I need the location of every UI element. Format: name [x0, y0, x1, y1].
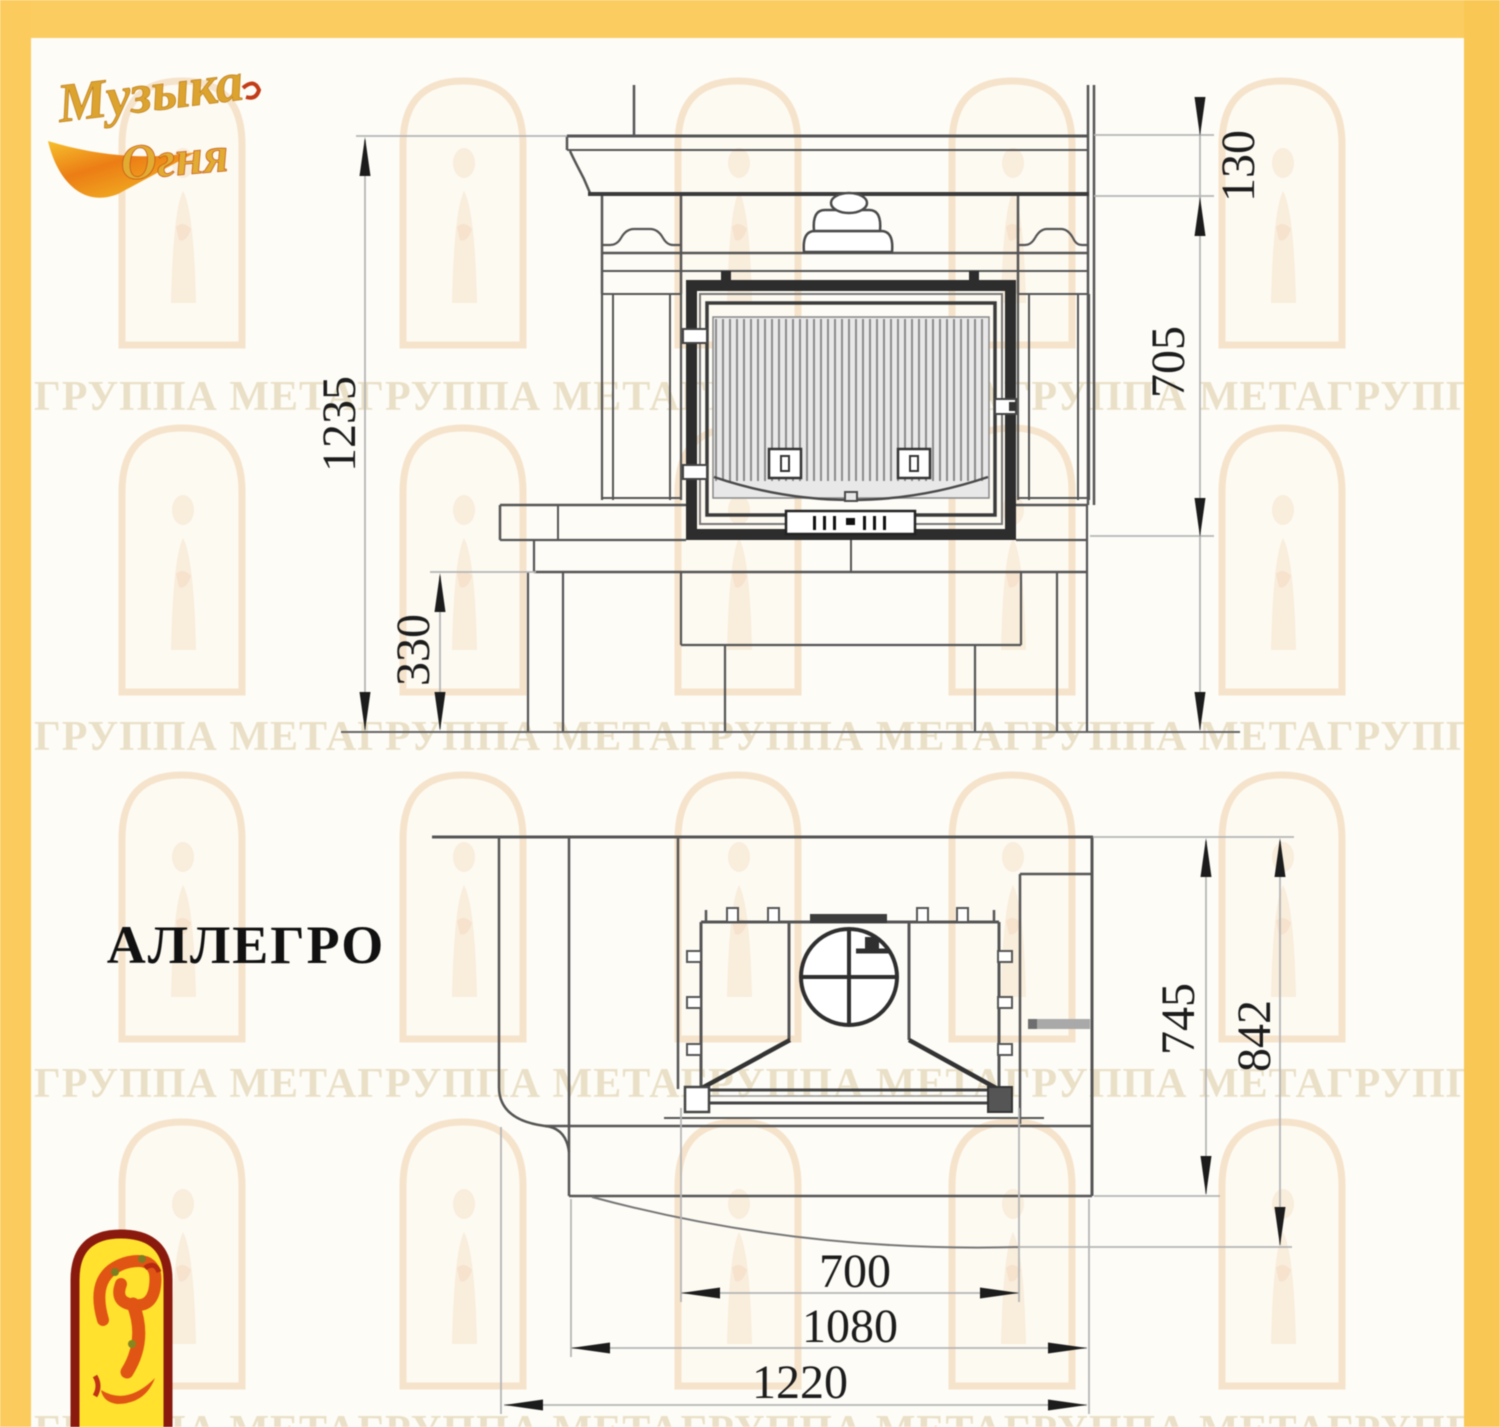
svg-text:АЛЛЕГРО: АЛЛЕГРО [107, 915, 386, 975]
svg-text:1235: 1235 [313, 376, 366, 472]
svg-text:1080: 1080 [802, 1300, 898, 1353]
svg-text:ГРУППА МЕТАГРУППА МЕТАГРУППА М: ГРУППА МЕТАГРУППА МЕТАГРУППА МЕТАГРУППА … [34, 1408, 1500, 1427]
svg-text:842: 842 [1228, 1000, 1281, 1072]
svg-text:ГРУППА МЕТАГРУППА МЕТАГРУППА М: ГРУППА МЕТАГРУППА МЕТАГРУППА МЕТАГРУППА … [34, 714, 1500, 760]
svg-text:Огня: Огня [118, 126, 231, 191]
svg-text:130: 130 [1212, 130, 1265, 202]
svg-text:330: 330 [387, 614, 440, 686]
svg-text:700: 700 [819, 1245, 891, 1298]
svg-text:705: 705 [1142, 326, 1195, 398]
svg-text:1220: 1220 [752, 1356, 848, 1409]
svg-text:745: 745 [1152, 983, 1205, 1055]
